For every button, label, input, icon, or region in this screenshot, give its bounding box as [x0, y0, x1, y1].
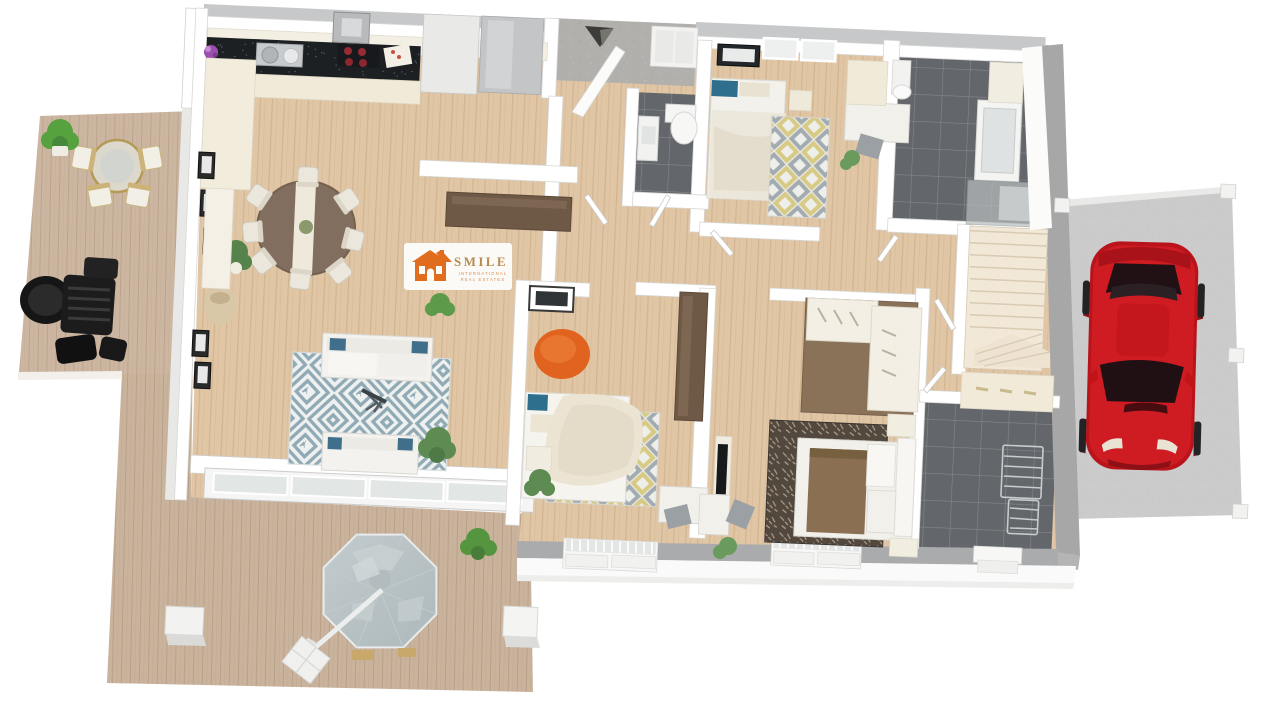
- svg-text:REAL ESTATES: REAL ESTATES: [461, 277, 506, 282]
- svg-text:INTERNATIONAL: INTERNATIONAL: [459, 271, 508, 276]
- svg-text:SMILE: SMILE: [454, 254, 508, 269]
